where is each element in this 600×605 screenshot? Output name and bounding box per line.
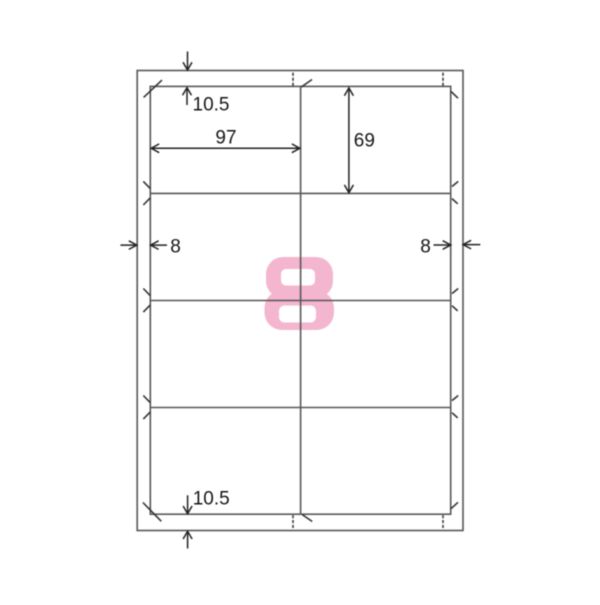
svg-text:69: 69 [354,131,375,152]
svg-text:10.5: 10.5 [193,95,230,116]
svg-text:8: 8 [420,236,431,257]
svg-text:10.5: 10.5 [193,489,230,510]
svg-text:97: 97 [215,128,236,149]
svg-text:8: 8 [170,236,181,257]
